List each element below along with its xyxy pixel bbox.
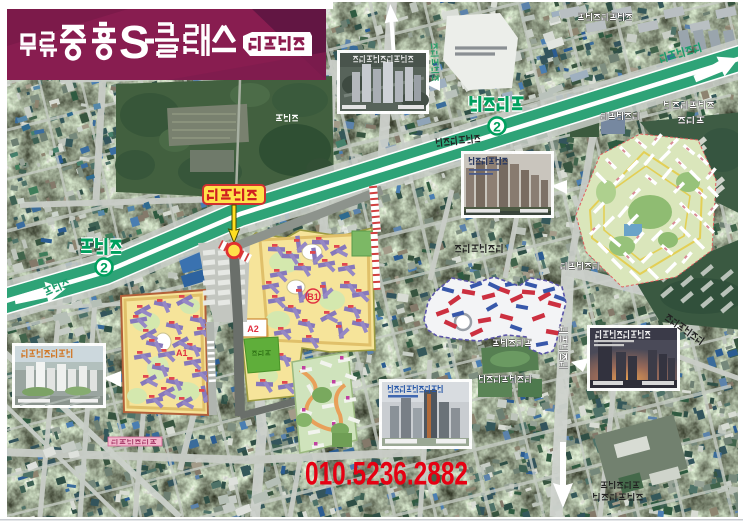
- svg-text:A1: A1: [176, 348, 188, 358]
- svg-text:010.5236.2882: 010.5236.2882: [305, 456, 468, 492]
- svg-text:2: 2: [493, 119, 501, 135]
- svg-text:B1: B1: [307, 292, 319, 302]
- svg-text:2: 2: [100, 260, 108, 276]
- svg-text:A2: A2: [247, 324, 259, 334]
